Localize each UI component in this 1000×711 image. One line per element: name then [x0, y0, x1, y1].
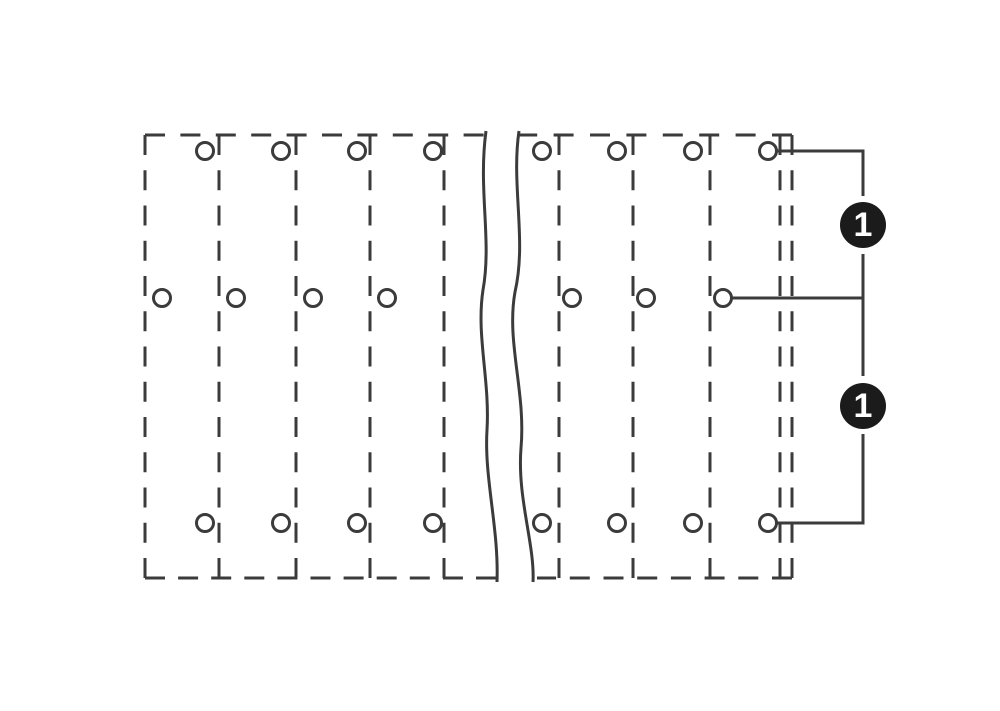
- terminal-block-drilling-diagram: 1 1: [0, 0, 1000, 711]
- drill-hole-bottom: [534, 515, 551, 532]
- drill-hole-middle: [379, 290, 396, 307]
- diagram-canvas: [0, 0, 1000, 711]
- drill-hole-middle: [715, 290, 732, 307]
- drill-hole-top: [609, 143, 626, 160]
- drill-hole-top: [425, 143, 442, 160]
- drill-hole-top: [685, 143, 702, 160]
- drill-hole-top: [273, 143, 290, 160]
- callout-badge-1-bottom: 1: [840, 383, 886, 429]
- drill-hole-bottom: [349, 515, 366, 532]
- drill-hole-top: [197, 143, 214, 160]
- drill-hole-middle: [305, 290, 322, 307]
- break-wave-line: [481, 131, 497, 582]
- drill-hole-bottom: [197, 515, 214, 532]
- drill-hole-bottom: [685, 515, 702, 532]
- drill-hole-middle: [638, 290, 655, 307]
- drill-hole-top: [760, 143, 777, 160]
- drill-hole-middle: [228, 290, 245, 307]
- drill-hole-middle: [154, 290, 171, 307]
- drill-hole-middle: [564, 290, 581, 307]
- callout-line: [777, 434, 863, 523]
- callout-line: [777, 151, 863, 196]
- drill-hole-bottom: [425, 515, 442, 532]
- break-wave-line: [513, 131, 534, 582]
- drill-hole-top: [349, 143, 366, 160]
- drill-hole-bottom: [609, 515, 626, 532]
- drill-hole-top: [534, 143, 551, 160]
- drill-hole-bottom: [273, 515, 290, 532]
- callout-badge-1-top: 1: [840, 202, 886, 248]
- drill-hole-bottom: [760, 515, 777, 532]
